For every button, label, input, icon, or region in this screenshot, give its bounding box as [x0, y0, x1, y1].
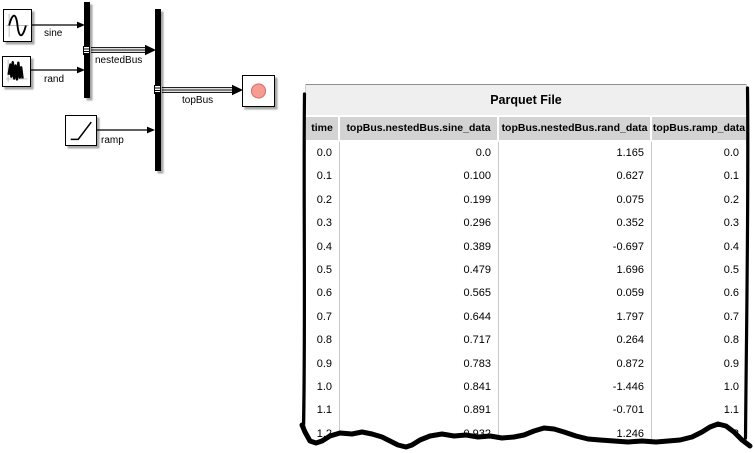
table-cell: 1.0: [306, 376, 340, 399]
signal-label-rand: rand: [44, 74, 64, 85]
table-cell: 0.075: [499, 189, 652, 212]
table-cell: 0.627: [499, 165, 652, 188]
table-cell: 1.165: [499, 142, 652, 165]
table-cell: 0.1: [652, 165, 746, 188]
table-title: Parquet File: [306, 84, 746, 115]
signal-label-nestedBus: nestedBus: [95, 55, 142, 66]
table-cell: 0.1: [306, 165, 340, 188]
signal-label-sine: sine: [44, 28, 62, 39]
table-cell: 0.565: [340, 282, 499, 305]
ramp-block[interactable]: [65, 115, 97, 146]
table-cell: 0.8: [306, 329, 340, 352]
table-cell: 0.644: [340, 306, 499, 329]
column-header-sine-data: topBus.nestedBus.sine_data: [340, 117, 499, 140]
table-cell: 0.5: [652, 259, 746, 282]
record-dot-icon: [243, 76, 274, 106]
table-cell: 0.2: [306, 189, 340, 212]
table-cell: 1.797: [499, 306, 652, 329]
table-cell: 1.2: [652, 423, 746, 446]
table-cell: 0.100: [340, 165, 499, 188]
table-cell: 0.9: [306, 353, 340, 376]
table-row: 1.00.841-1.4461.0: [306, 376, 746, 399]
table-cell: 0.2: [652, 189, 746, 212]
noise-signal-icon: [3, 57, 30, 86]
ramp-icon: [66, 116, 96, 145]
table-cell: 1.1: [306, 399, 340, 422]
table-row: 0.00.01.1650.0: [306, 142, 746, 165]
table-cell: 0.8: [652, 329, 746, 352]
sine-wave-block[interactable]: [3, 9, 32, 42]
table-cell: 0.6: [652, 282, 746, 305]
table-cell: 0.7: [652, 306, 746, 329]
bus-output-port-icon: [83, 46, 90, 55]
table-cell: 1.246: [499, 423, 652, 446]
table-cell: 0.352: [499, 212, 652, 235]
table-cell: 0.389: [340, 236, 499, 259]
table-row: 0.60.5650.0590.6: [306, 282, 746, 305]
table-cell: 0.3: [652, 212, 746, 235]
table-header-row: time topBus.nestedBus.sine_data topBus.n…: [306, 117, 746, 140]
table-cell: 0.199: [340, 189, 499, 212]
table-cell: 0.891: [340, 399, 499, 422]
table-cell: -1.446: [499, 376, 652, 399]
table-cell: 1.0: [652, 376, 746, 399]
sine-wave-icon: [4, 10, 31, 41]
table-cell: 0.7: [306, 306, 340, 329]
bus-creator-1[interactable]: [84, 2, 90, 98]
table-cell: 0.0: [652, 142, 746, 165]
table-row: 1.20.9321.2461.2: [306, 423, 746, 446]
bus-creator-2[interactable]: [155, 9, 162, 171]
table-row: 0.20.1990.0750.2: [306, 189, 746, 212]
column-header-rand-data: topBus.nestedBus.rand_data: [499, 117, 652, 140]
table-cell: 0.717: [340, 329, 499, 352]
table-cell: 0.479: [340, 259, 499, 282]
column-header-ramp-data: topBus.ramp_data: [652, 117, 746, 140]
table-cell: 0.296: [340, 212, 499, 235]
random-number-block[interactable]: [2, 56, 31, 87]
table-body: 0.00.01.1650.00.10.1000.6270.10.20.1990.…: [306, 142, 746, 446]
canvas: Parquet File time topBus.nestedBus.sine_…: [0, 0, 755, 453]
column-header-time: time: [306, 117, 340, 140]
signal-label-ramp: ramp: [101, 135, 124, 146]
table-cell: 0.059: [499, 282, 652, 305]
record-block[interactable]: [242, 75, 275, 107]
bus-line-nestedBus: [91, 48, 146, 53]
table-row: 0.70.6441.7970.7: [306, 306, 746, 329]
bus-output-port-icon: [154, 85, 161, 94]
table-cell: -0.697: [499, 236, 652, 259]
parquet-file-table: Parquet File time topBus.nestedBus.sine_…: [305, 84, 747, 446]
table-cell: 0.872: [499, 353, 652, 376]
table-cell: 0.264: [499, 329, 652, 352]
table-cell: -0.701: [499, 399, 652, 422]
table-cell: 0.0: [306, 142, 340, 165]
table-cell: 0.9: [652, 353, 746, 376]
table-row: 0.90.7830.8720.9: [306, 353, 746, 376]
table-cell: 0.5: [306, 259, 340, 282]
table-cell: 0.4: [306, 236, 340, 259]
table-cell: 1.696: [499, 259, 652, 282]
table-cell: 0.3: [306, 212, 340, 235]
table-cell: 0.841: [340, 376, 499, 399]
table-row: 0.40.389-0.6970.4: [306, 236, 746, 259]
table-cell: 0.0: [340, 142, 499, 165]
table-row: 0.50.4791.6960.5: [306, 259, 746, 282]
table-row: 1.10.891-0.7011.1: [306, 399, 746, 422]
table-cell: 0.783: [340, 353, 499, 376]
bus-line-topBus: [162, 88, 233, 93]
signal-label-topBus: topBus: [182, 95, 213, 106]
table-row: 0.30.2960.3520.3: [306, 212, 746, 235]
table-cell: 1.1: [652, 399, 746, 422]
table-cell: 1.2: [306, 423, 340, 446]
table-cell: 0.4: [652, 236, 746, 259]
table-row: 0.80.7170.2640.8: [306, 329, 746, 352]
table-cell: 0.932: [340, 423, 499, 446]
table-row: 0.10.1000.6270.1: [306, 165, 746, 188]
table-cell: 0.6: [306, 282, 340, 305]
